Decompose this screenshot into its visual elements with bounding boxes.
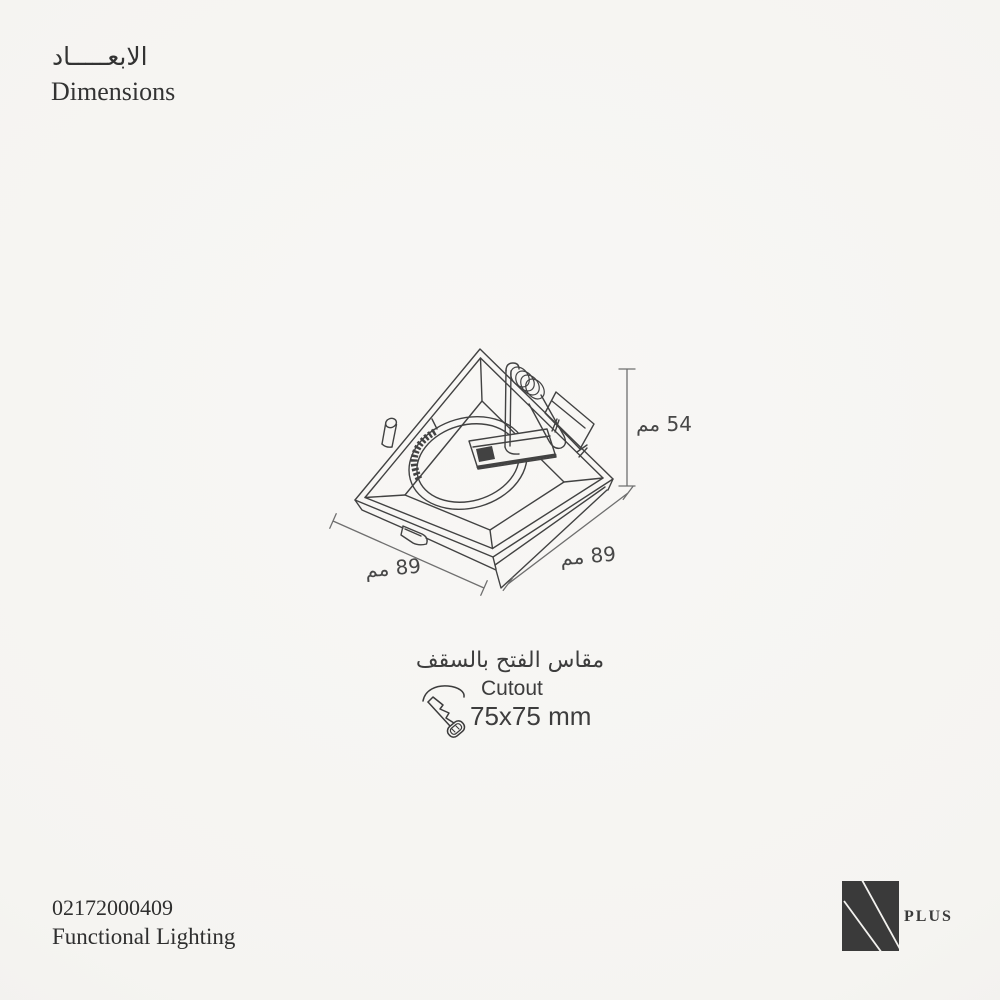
fixture-drawing xyxy=(300,330,700,640)
page-title-arabic: الابعـــــاد xyxy=(52,42,148,71)
height-dimension-line xyxy=(619,369,635,486)
cutout-icon xyxy=(412,678,478,744)
cutout-title-arabic: مقاس الفتح بالسقف xyxy=(405,648,615,673)
height-dimension-label: 54 مم xyxy=(636,412,692,436)
nplus-logo xyxy=(842,881,899,952)
logo-n-mark xyxy=(842,881,899,952)
cutout-size-value: 75x75 mm xyxy=(470,701,591,732)
page-title-english: Dimensions xyxy=(51,77,175,107)
spec-sheet-page: الابعـــــاد Dimensions xyxy=(0,0,1000,1000)
logo-plus-text: PLUS xyxy=(904,908,953,926)
lamp-holder xyxy=(469,419,587,469)
product-line: Functional Lighting xyxy=(52,924,235,950)
product-code: 02172000409 xyxy=(52,895,173,921)
cutout-title-english: Cutout xyxy=(481,677,543,701)
left-clip xyxy=(382,417,398,447)
